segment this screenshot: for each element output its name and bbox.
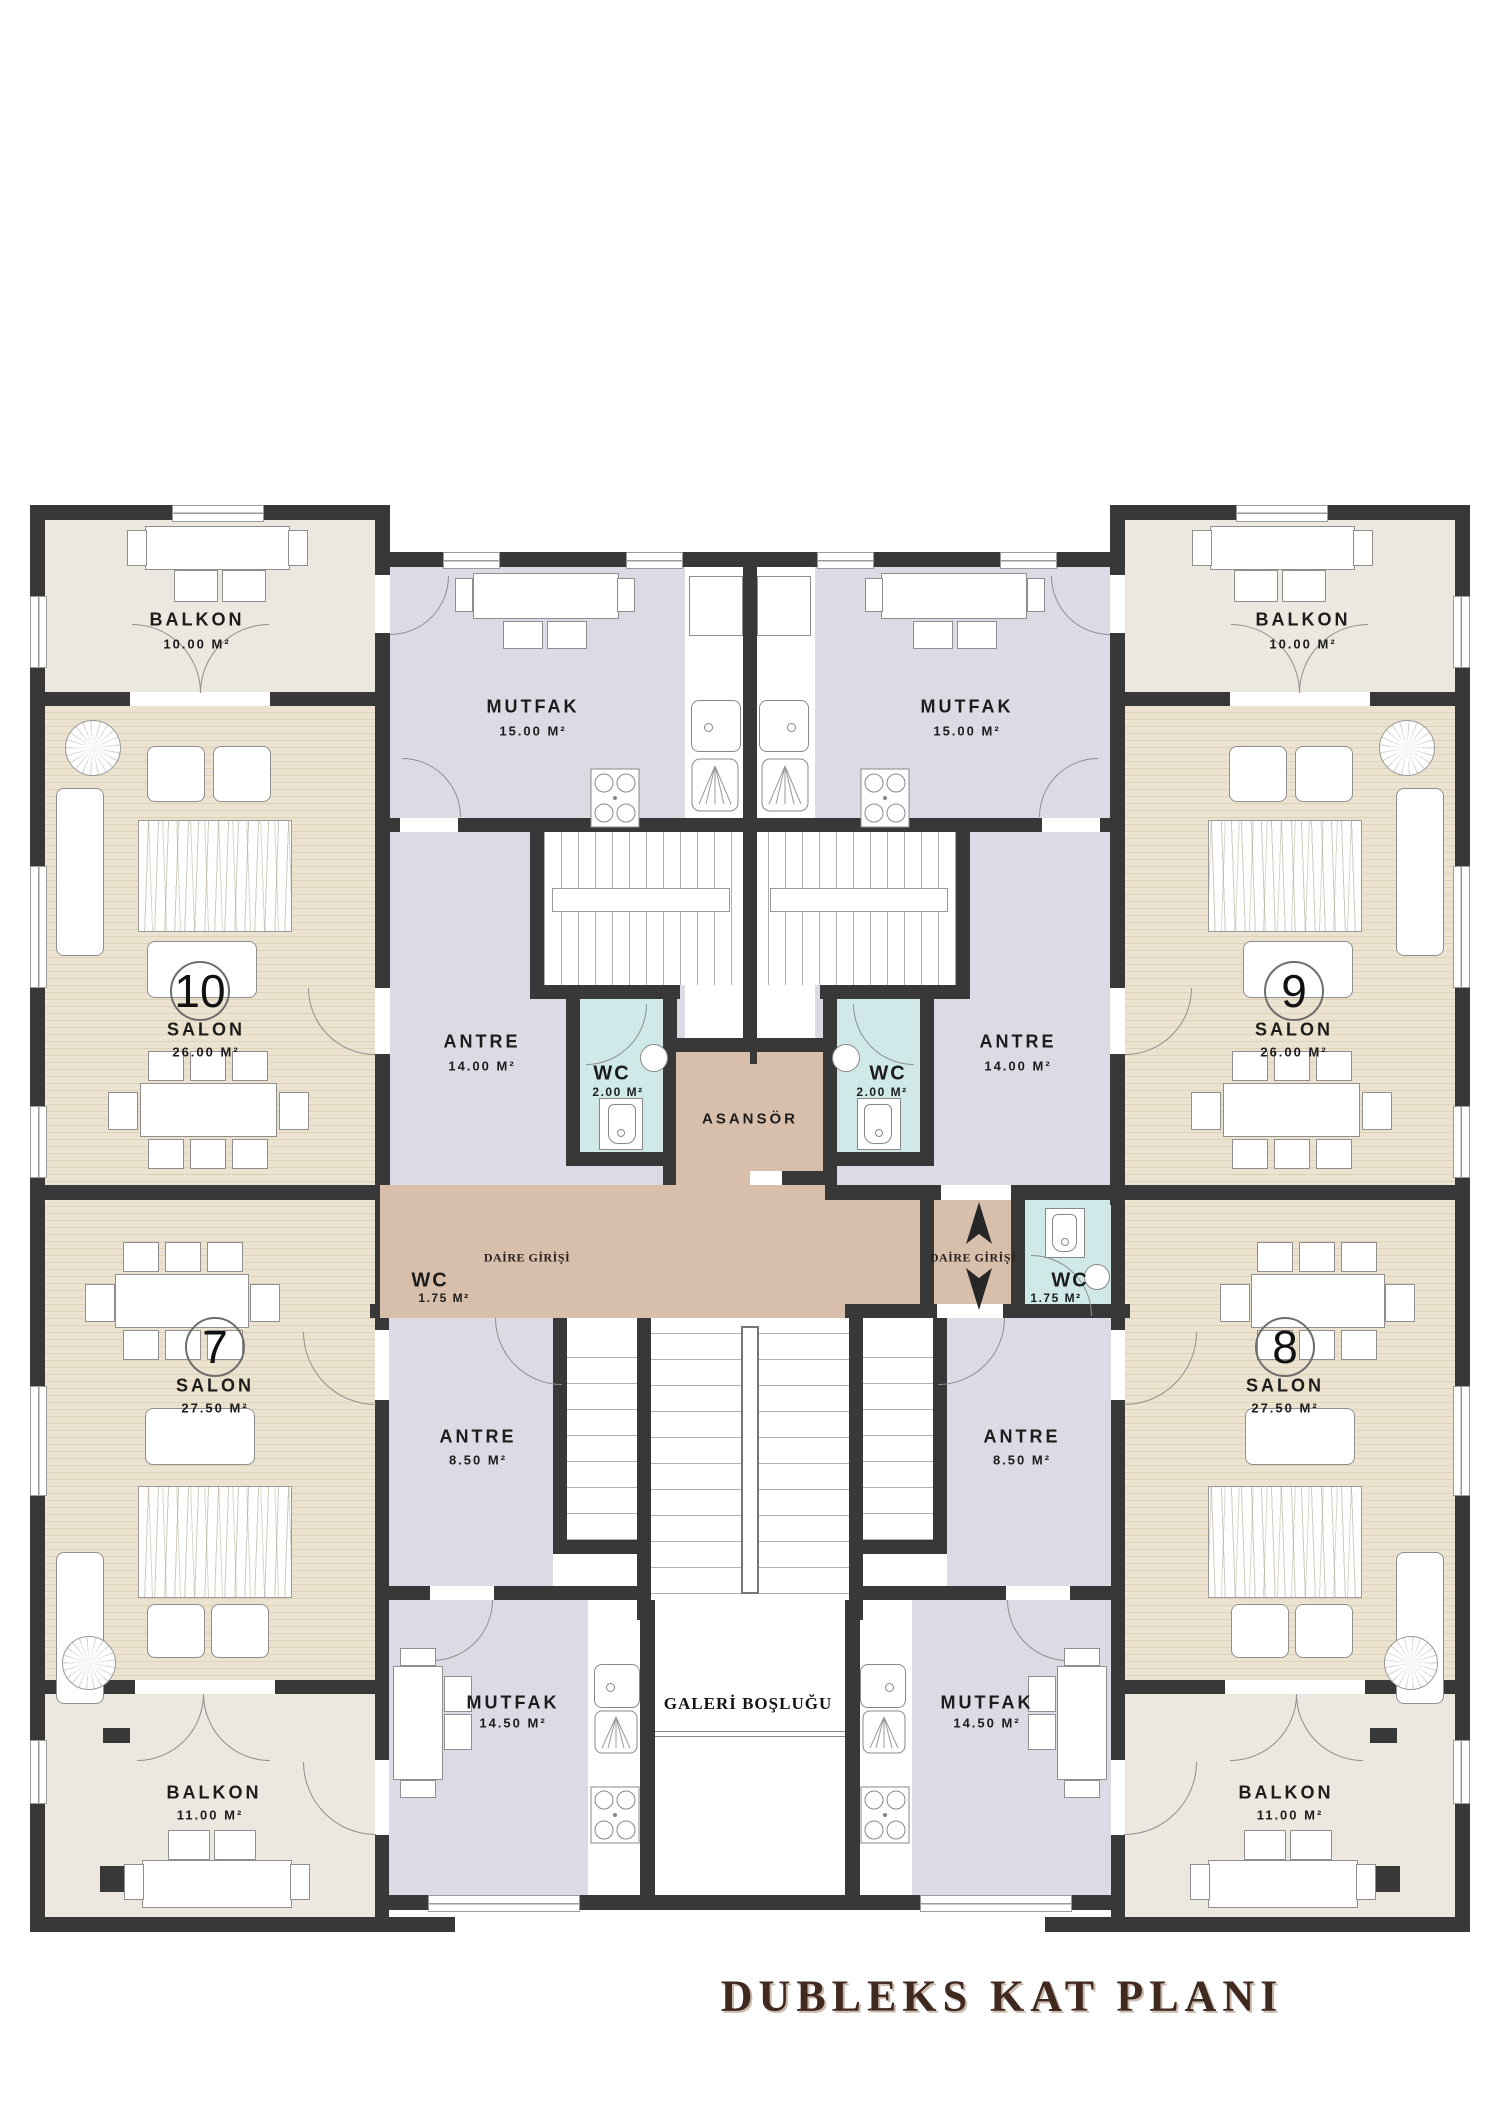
- room-area-salon-9: 26.00 M²: [1260, 1045, 1327, 1060]
- entry-label-left: DAİRE GİRİŞİ: [484, 1251, 570, 1266]
- room-label-wc-8: WC: [1051, 1270, 1088, 1293]
- room-label-wc-7: WC: [411, 1270, 448, 1293]
- room-label-salon-8: SALON: [1246, 1376, 1324, 1397]
- room-area-salon-7: 27.50 M²: [181, 1401, 248, 1416]
- room-label-balkon-9: BALKON: [1256, 610, 1351, 631]
- room-area-antre-9: 14.00 M²: [984, 1059, 1051, 1074]
- room-label-salon-7: SALON: [176, 1376, 254, 1397]
- room-label-antre-9: ANTRE: [980, 1032, 1057, 1053]
- room-area-mutfak-7: 14.50 M²: [479, 1716, 546, 1731]
- apartment-number-10: 10: [170, 961, 230, 1021]
- room-label-mutfak-9: MUTFAK: [921, 697, 1014, 718]
- room-area-balkon-10: 10.00 M²: [163, 637, 230, 652]
- room-area-antre-8: 8.50 M²: [993, 1453, 1051, 1468]
- room-area-mutfak-8: 14.50 M²: [953, 1716, 1020, 1731]
- entry-label-right: DAİRE GİRİŞİ: [930, 1251, 1016, 1266]
- labels-layer: BALKON 10.00 M² MUTFAK 15.00 M² 10 SALON…: [0, 0, 1500, 2120]
- room-label-balkon-8: BALKON: [1239, 1783, 1334, 1804]
- room-area-mutfak-10: 15.00 M²: [499, 724, 566, 739]
- room-area-balkon-7: 11.00 M²: [177, 1808, 244, 1823]
- apartment-number-9: 9: [1264, 961, 1324, 1021]
- apartment-number-8: 8: [1255, 1317, 1315, 1377]
- room-area-wc-7: 1.75 M²: [418, 1291, 469, 1305]
- room-label-mutfak-8: MUTFAK: [941, 1693, 1034, 1714]
- floor-plan-page: BALKON 10.00 M² MUTFAK 15.00 M² 10 SALON…: [0, 0, 1500, 2120]
- room-area-balkon-8: 11.00 M²: [1257, 1808, 1324, 1823]
- room-area-wc-9: 2.00 M²: [856, 1085, 907, 1099]
- room-label-mutfak-7: MUTFAK: [467, 1693, 560, 1714]
- room-area-antre-10: 14.00 M²: [448, 1059, 515, 1074]
- apartment-number-7: 7: [185, 1317, 245, 1377]
- room-label-wc-9: WC: [869, 1063, 906, 1086]
- room-area-wc-10: 2.00 M²: [592, 1085, 643, 1099]
- room-label-wc-10: WC: [593, 1063, 630, 1086]
- room-label-salon-9: SALON: [1255, 1020, 1333, 1041]
- room-label-salon-10: SALON: [167, 1020, 245, 1041]
- elevator-label: ASANSÖR: [702, 1111, 798, 1128]
- room-area-salon-10: 26.00 M²: [172, 1045, 239, 1060]
- room-label-mutfak-10: MUTFAK: [487, 697, 580, 718]
- room-area-antre-7: 8.50 M²: [449, 1453, 507, 1468]
- room-area-balkon-9: 10.00 M²: [1269, 637, 1336, 652]
- room-area-wc-8: 1.75 M²: [1030, 1291, 1081, 1305]
- room-label-antre-10: ANTRE: [444, 1032, 521, 1053]
- page-title: DUBLEKS KAT PLANI: [721, 1971, 1283, 2022]
- room-label-antre-7: ANTRE: [440, 1427, 517, 1448]
- room-area-salon-8: 27.50 M²: [1251, 1401, 1318, 1416]
- room-label-balkon-7: BALKON: [167, 1783, 262, 1804]
- room-label-balkon-10: BALKON: [150, 610, 245, 631]
- room-area-mutfak-9: 15.00 M²: [933, 724, 1000, 739]
- room-label-antre-8: ANTRE: [984, 1427, 1061, 1448]
- gallery-void-label: GALERİ BOŞLUĞU: [664, 1694, 832, 1714]
